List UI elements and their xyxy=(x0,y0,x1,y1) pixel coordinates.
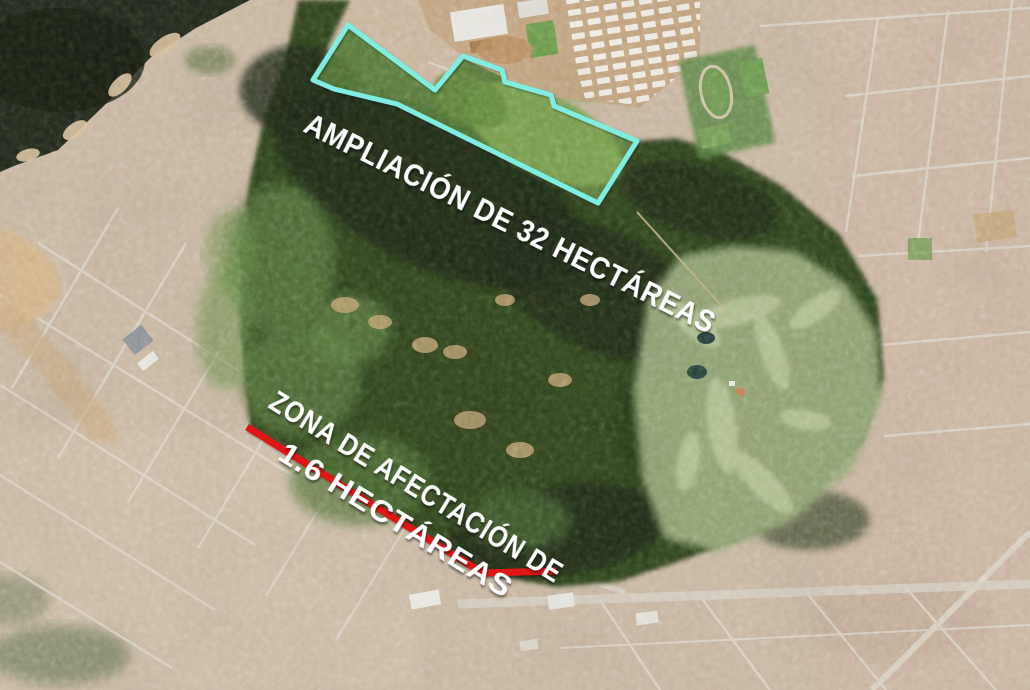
satellite-map-canvas: AMPLIACIÓN DE 32 HECTÁREAS ZONA DE AFECT… xyxy=(0,0,1030,690)
blotch-overlay xyxy=(0,0,1030,690)
satellite-map: AMPLIACIÓN DE 32 HECTÁREAS ZONA DE AFECT… xyxy=(0,0,1030,690)
